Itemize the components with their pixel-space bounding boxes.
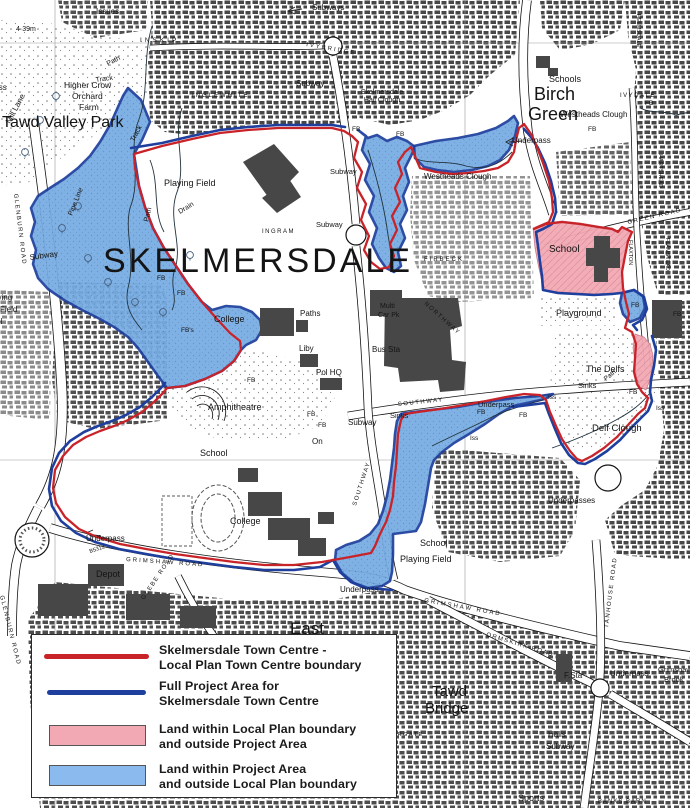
map-label: Subways <box>312 3 344 12</box>
map-label: INGRAM <box>262 229 295 235</box>
map-label: Underpass <box>512 136 551 145</box>
map-label: Amphitheatre <box>208 402 262 412</box>
legend-red-line-sample <box>44 654 149 659</box>
map-label: FLAMSTEAD <box>664 238 670 271</box>
roundabout <box>591 679 609 697</box>
legend-label-line: and outside Local Plan boundary <box>159 777 357 792</box>
map-label: Iss <box>470 435 479 442</box>
map-label: Playing Field <box>400 554 452 564</box>
map-label: FB <box>519 412 527 419</box>
built-up-area <box>410 176 534 302</box>
map-label: Issues <box>96 7 119 16</box>
built-up-area <box>556 142 633 216</box>
map-label: HELMSDALE <box>635 14 641 48</box>
legend-item-label: Skelmersdale Town Centre - Local Plan To… <box>159 643 362 674</box>
building <box>180 606 216 628</box>
map-label: School <box>549 244 580 255</box>
map-label: FB <box>177 290 185 297</box>
built-up-area <box>432 448 580 562</box>
map-label: School <box>200 448 228 458</box>
map-label: Brook <box>664 675 684 684</box>
map-label: FB <box>629 389 637 396</box>
map-label: FLAXTON <box>627 240 633 265</box>
map-label: FB <box>247 377 255 384</box>
map-label: SKELMERSDALE <box>103 242 413 280</box>
map-label: Westheads Clough <box>424 172 491 181</box>
map-label: Car Pk <box>378 312 400 319</box>
legend-blue-swatch-sample <box>49 765 146 786</box>
building <box>300 354 318 367</box>
legend-item-label: Full Project Area for Skelmersdale Town … <box>159 679 319 710</box>
legend-label-line: Land within Local Plan boundary <box>159 722 356 737</box>
building <box>126 594 170 620</box>
map-label: Depot <box>96 569 121 579</box>
map-label: Subway <box>348 418 376 427</box>
map-label: Bus Sta <box>372 345 401 354</box>
map-label: FB <box>396 131 404 138</box>
building <box>298 538 326 556</box>
map-label: Delf Clough <box>592 423 642 434</box>
map-label: Playground <box>556 308 602 318</box>
map-label: Field <box>0 305 17 314</box>
map-label: INGLEWHITE <box>192 93 249 99</box>
legend-label-line: Land within Project Area <box>159 762 357 777</box>
map-label: Orchard <box>72 91 103 101</box>
legend-item-label: Land within Local Plan boundary and outs… <box>159 722 356 753</box>
map-label: HARTSHEAD <box>657 154 663 188</box>
map-label: Westheads Clough <box>560 110 627 119</box>
map-label: Multi <box>380 303 395 310</box>
map-label: Liby <box>299 344 314 353</box>
map-label: Iss <box>656 405 665 412</box>
map-label: Pol HQ <box>316 368 342 377</box>
map-label: Birch <box>534 84 575 104</box>
legend-blue-line-sample <box>47 690 146 695</box>
map-label: Playing <box>0 293 12 302</box>
map-label: School <box>420 538 448 548</box>
building <box>248 492 282 516</box>
map-label: FB <box>588 126 596 133</box>
map-label: FB <box>307 411 315 418</box>
building <box>238 468 258 482</box>
legend-item-label: Land within Project Area and outside Loc… <box>159 762 357 793</box>
map-label: Schools <box>549 74 582 84</box>
legend-label-line: Skelmersdale Town Centre - <box>159 643 362 658</box>
map-label: Bridge <box>425 700 468 717</box>
building <box>536 56 550 68</box>
map-label: BANKS BARN <box>598 799 647 805</box>
map-label: Subway <box>546 742 574 751</box>
map-label: FB <box>477 409 485 416</box>
building <box>652 300 682 338</box>
map-label: Skelmersdale <box>361 89 404 96</box>
map-label: Underpass <box>610 669 649 678</box>
map-label: FIRBECK <box>424 257 464 263</box>
map-label: FB <box>673 311 681 318</box>
map-label: Underpasses <box>548 496 595 505</box>
roundabout <box>595 465 621 491</box>
map-label: F.Sta <box>564 671 583 680</box>
map-label: Grimshaw <box>658 665 690 674</box>
map-label: Playing Field <box>164 178 216 188</box>
map-label: Underpass <box>478 400 515 409</box>
map-label: FB <box>645 100 653 107</box>
road <box>150 46 324 48</box>
map-label: Hall Clough <box>364 97 400 104</box>
map-label: FB <box>157 275 165 282</box>
map-page: IssuesSubways4·39mMill LanePathTrackHigh… <box>0 0 690 808</box>
building <box>268 518 310 540</box>
map-label: School <box>0 317 3 326</box>
map-label: Subway <box>296 79 324 88</box>
legend-label-line: Skelmersdale Town Centre <box>159 694 319 709</box>
map-label: 4·39m <box>16 26 36 33</box>
legend-label-line: Full Project Area for <box>159 679 319 694</box>
map-label: Underpass <box>340 585 379 594</box>
map-label: Tawd Valley Park <box>2 114 125 131</box>
map-label: College <box>230 516 261 526</box>
building <box>260 308 294 336</box>
building <box>318 512 334 524</box>
map-label: Underpass <box>0 83 7 92</box>
map-label: Sinks <box>578 381 597 390</box>
building <box>38 584 88 616</box>
map-label: INSKIP <box>140 37 179 44</box>
map-label: The Delfs <box>586 364 625 374</box>
building <box>296 320 308 332</box>
map-label: Sports <box>518 793 545 803</box>
map-label: IVYDALE <box>620 93 656 99</box>
map-label: Higher Crow <box>64 80 112 90</box>
map-label: Tawd <box>432 683 467 700</box>
map-label: Subway <box>330 167 357 176</box>
map-label: College <box>214 314 245 324</box>
map-label: Paths <box>300 309 320 318</box>
map-label: Halls <box>548 730 566 739</box>
map-label: Sinks <box>390 411 409 420</box>
legend-label-line: and outside Project Area <box>159 737 356 752</box>
map-label: Iss <box>548 394 557 401</box>
building <box>320 378 342 390</box>
legend: Skelmersdale Town Centre - Local Plan To… <box>31 634 397 798</box>
map-label: FB's <box>181 327 195 334</box>
map-label: FB <box>318 422 326 429</box>
legend-label-line: Local Plan Town Centre boundary <box>159 658 362 673</box>
map-label: On <box>312 437 323 446</box>
map-label: FB <box>631 302 639 309</box>
legend-pink-swatch-sample <box>49 725 146 746</box>
map-label: Underpass <box>86 534 125 543</box>
map-label: FB <box>352 126 360 133</box>
map-label: Farm <box>79 102 99 112</box>
map-label: Subway <box>316 220 343 229</box>
